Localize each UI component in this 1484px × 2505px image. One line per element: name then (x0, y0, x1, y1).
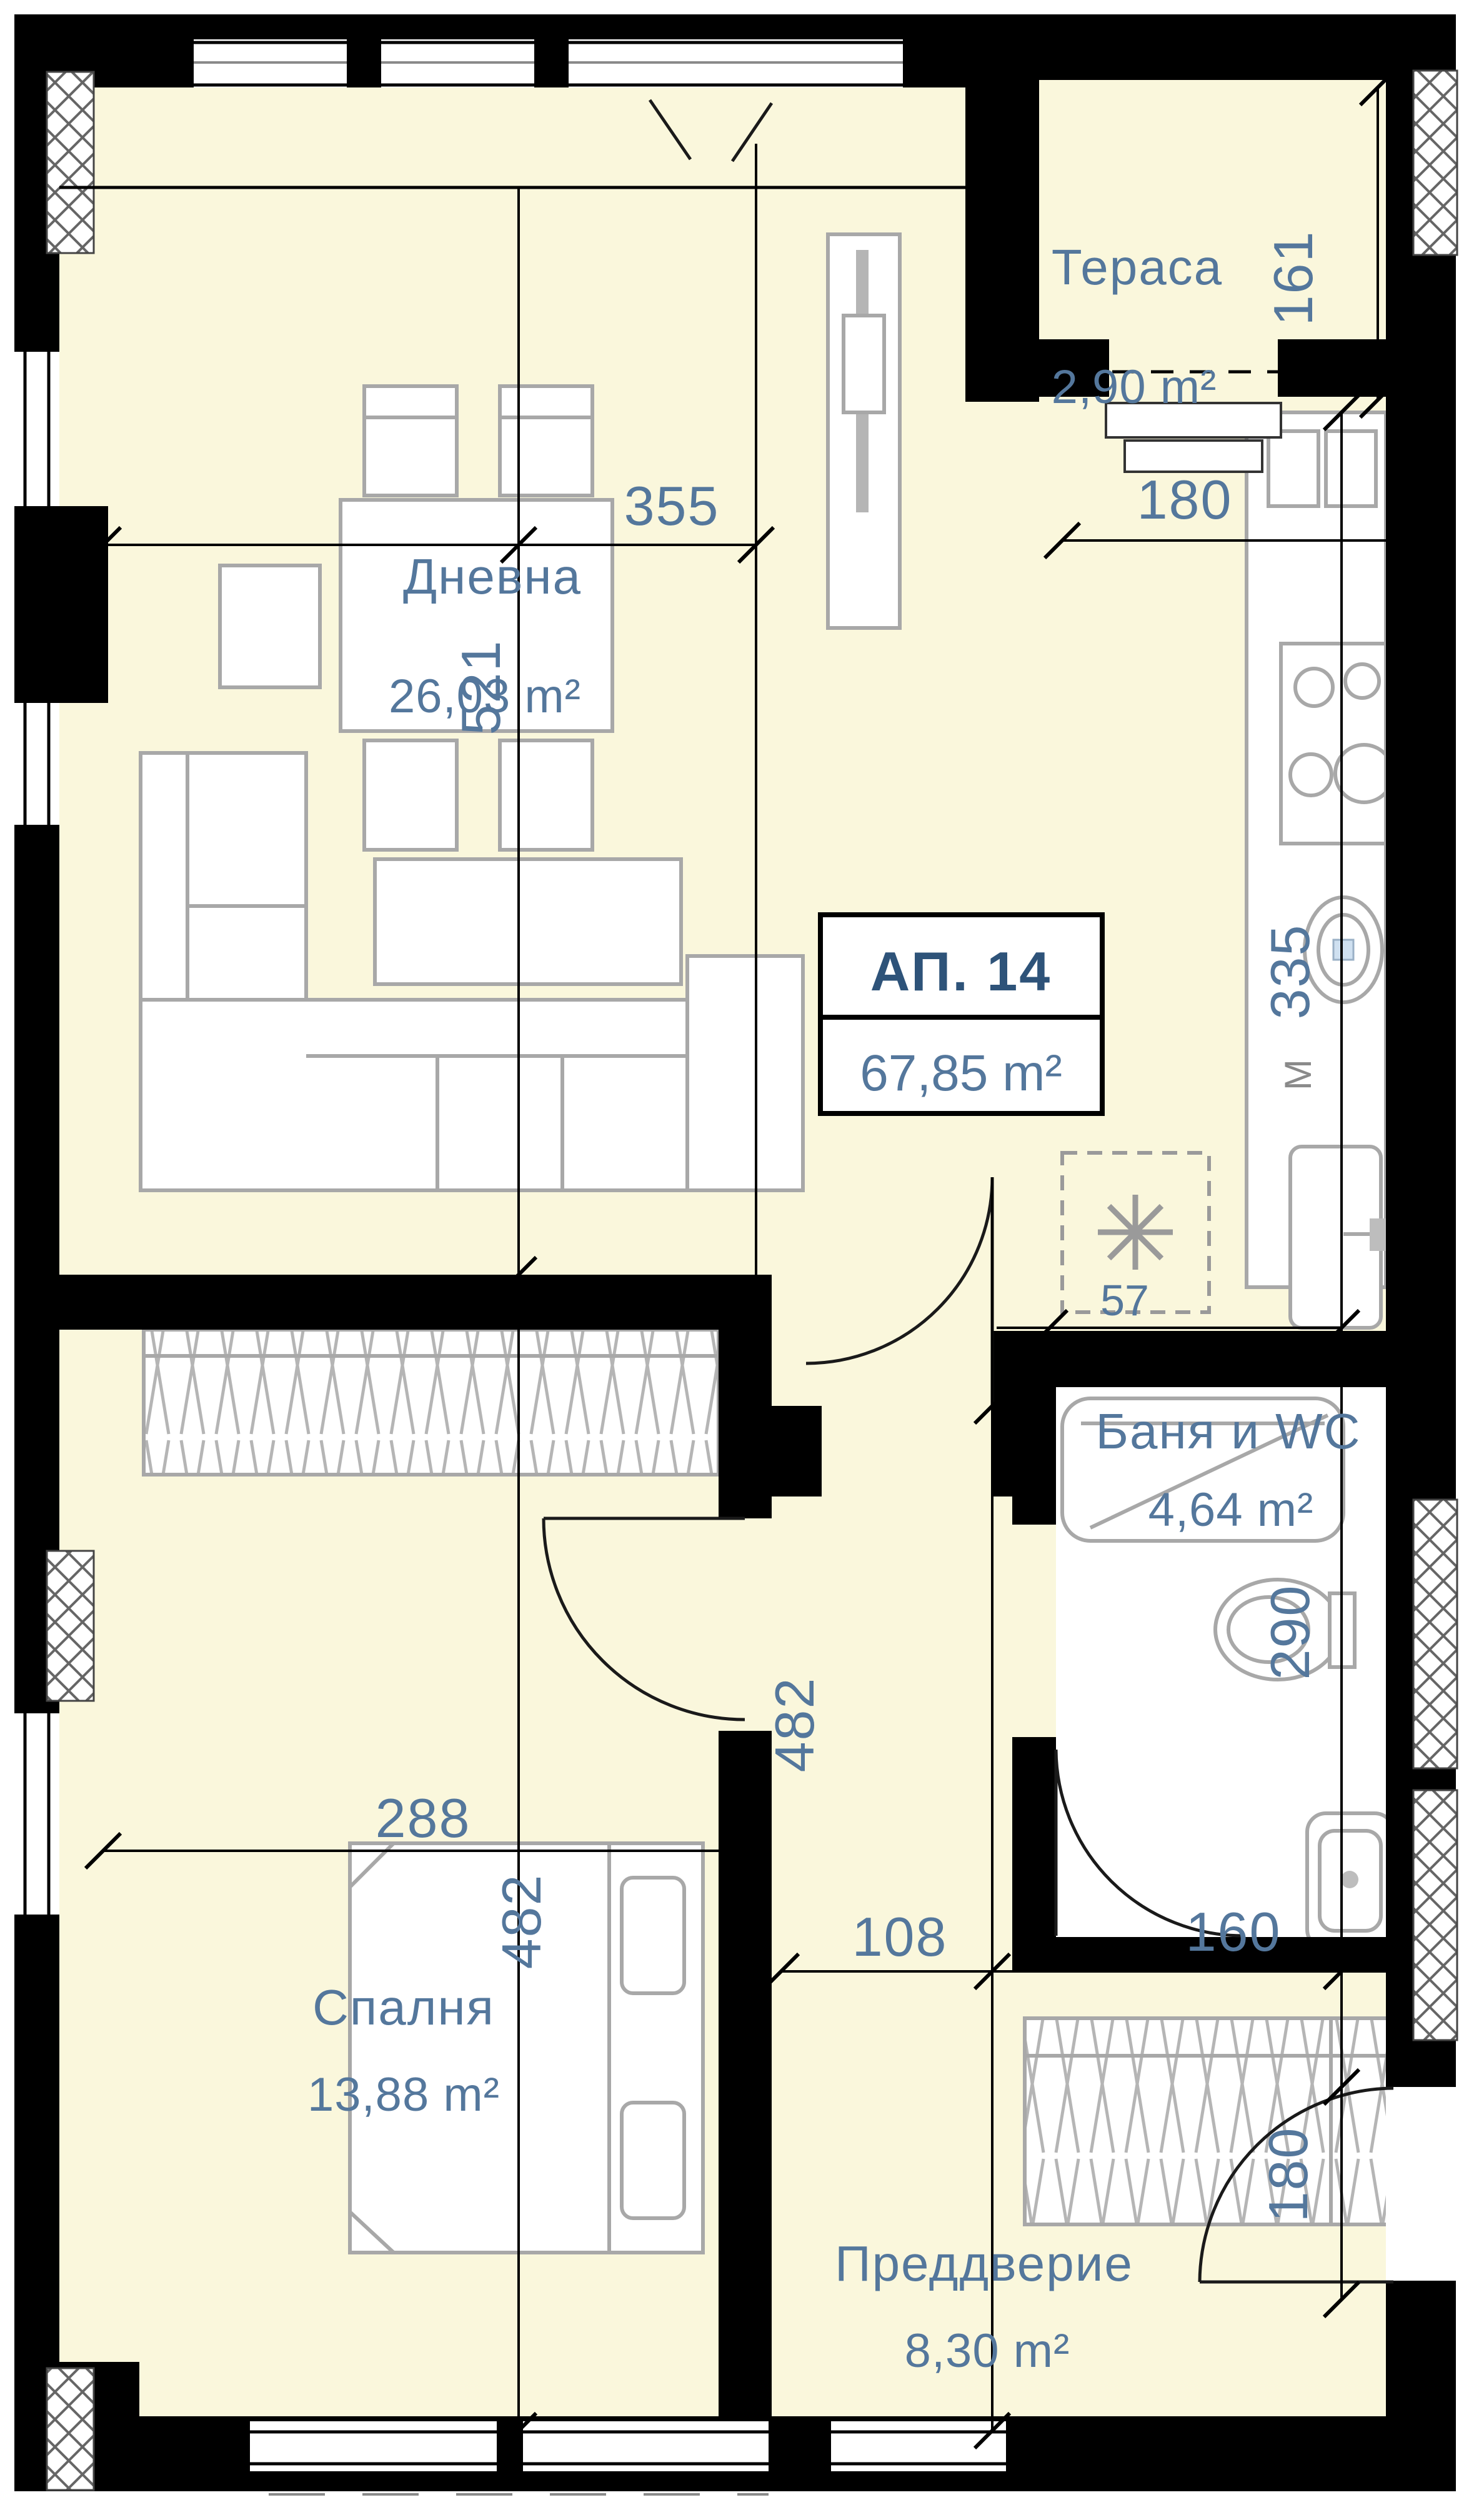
kitchen-mark: M (1277, 1059, 1319, 1090)
kitchen-counter (1247, 412, 1393, 1328)
cooktop (1281, 644, 1393, 844)
tv-cabinet (828, 234, 900, 628)
dim-living-width: 355 (624, 475, 720, 537)
pillow (622, 2103, 684, 2218)
bedroom-wardrobe (144, 1330, 719, 1475)
pillow (622, 1878, 684, 1993)
shaft-hatch (1413, 1790, 1457, 2040)
terrace-area: 2,90 m² (1052, 361, 1217, 414)
left-window (14, 352, 59, 506)
dim-bedroom-height: 482 (491, 1874, 552, 1970)
dim-hall-height: 482 (764, 1677, 825, 1773)
chair (364, 386, 457, 496)
boiler-asterisk-icon (1098, 1195, 1173, 1270)
dim-bathroom-run: 290 (1259, 1585, 1321, 1680)
dim-hall-split-right: 160 (1186, 1901, 1282, 1963)
bathroom-name: Баня и WC (1096, 1403, 1362, 1459)
dim-bedroom-width: 288 (376, 1787, 471, 1849)
bedroom-left-window (14, 1713, 59, 1915)
kitchen-rack (1268, 431, 1318, 506)
chair (364, 740, 457, 850)
chair (500, 740, 592, 850)
dim-kitchen-offset: 57 (1100, 1276, 1149, 1325)
hall-name: Преддверие (835, 2236, 1133, 2291)
dim-kitchen-run: 335 (1259, 924, 1321, 1020)
shaft-hatch (1413, 1500, 1457, 1768)
unit-label-box: АП. 14 67,85 m² (820, 915, 1102, 1113)
coffee-table (375, 859, 681, 984)
drain-icon (1341, 1871, 1358, 1888)
hall-area: 8,30 m² (905, 2324, 1070, 2378)
kitchen-sink (1290, 1147, 1386, 1328)
column-hatch (47, 1551, 94, 1701)
unit-number: АП. 14 (870, 940, 1052, 1002)
column-hatch (47, 72, 94, 253)
kitchen-rack (1326, 431, 1376, 506)
column-hatch (1413, 71, 1457, 255)
floor-plan-page: Дневна 26,03 m² Тераса 2,90 m² Баня и WC… (0, 0, 1484, 2505)
dim-living-height: 521 (450, 640, 512, 735)
living-name: Дневна (403, 549, 582, 604)
hall-bottom-window (831, 2421, 1006, 2471)
dim-terrace-side: 161 (1262, 231, 1324, 326)
bathroom-area: 4,64 m² (1148, 1483, 1314, 1536)
floor-plan-svg: Дневна 26,03 m² Тераса 2,90 m² Баня и WC… (0, 0, 1484, 2505)
bedroom-name: Спалня (312, 1980, 495, 2035)
faucet-icon (1370, 1218, 1386, 1251)
left-window (14, 703, 59, 825)
terrace-name: Тераса (1052, 239, 1223, 295)
dim-terrace-width: 180 (1137, 469, 1233, 530)
unit-area: 67,85 m² (860, 1045, 1062, 1102)
column-hatch (47, 2368, 94, 2490)
dim-hall-split-left: 108 (852, 1906, 948, 1968)
bedroom-area: 13,88 m² (307, 2068, 500, 2121)
chair (500, 386, 592, 496)
hall-wardrobe (1025, 2018, 1393, 2224)
entry-opening (1386, 2087, 1456, 2281)
bathroom-sink (1307, 1813, 1393, 1948)
chair (220, 565, 320, 687)
dim-entry-clearance: 180 (1257, 2127, 1319, 2223)
